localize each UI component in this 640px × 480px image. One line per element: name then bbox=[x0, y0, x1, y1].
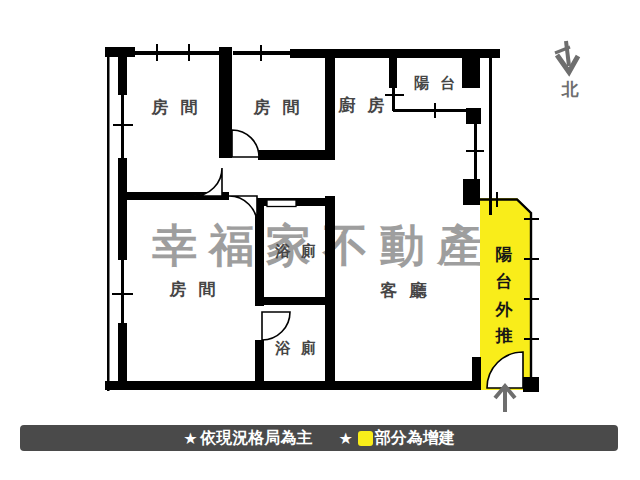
room-label-bedroom-3: 房 間 bbox=[169, 279, 219, 299]
wall-bed2-kitchen bbox=[325, 50, 335, 151]
wall-balcony-left-thick bbox=[389, 50, 397, 88]
wall-bed2-bottom bbox=[258, 150, 335, 160]
room-label-balcony: 陽 台 bbox=[414, 74, 458, 92]
wall-living-se-stub bbox=[472, 357, 481, 382]
room-label-bedroom-1: 房 間 bbox=[151, 97, 201, 117]
legend-note-addition-text: 部分為增建 bbox=[375, 428, 455, 449]
room-labels: 房 間 房 間 廚 房 陽 台 房 間 浴 廁 浴 廁 客 廳 bbox=[151, 74, 459, 357]
wall-balcony-floor-block bbox=[466, 108, 481, 124]
wall-left-outer-line bbox=[107, 49, 110, 391]
star-icon: ★ bbox=[183, 429, 197, 448]
wall-balcony-floor bbox=[393, 109, 468, 112]
north-indicator: 北 bbox=[555, 41, 580, 99]
balcony-extension-char-4: 推 bbox=[495, 325, 513, 345]
star-icon: ★ bbox=[339, 429, 353, 448]
north-arrow-icon bbox=[555, 41, 578, 72]
wall-left-inner-c bbox=[118, 323, 127, 383]
legend-yellow-square-icon bbox=[358, 431, 373, 446]
screenshot-root: { "floorplan": { "watermark": "幸福家不動產", … bbox=[0, 0, 640, 480]
wall-bottom bbox=[105, 381, 481, 390]
wall-right-line bbox=[489, 58, 492, 215]
wall-kitchen-window-block bbox=[463, 179, 480, 205]
wall-bath-mid bbox=[255, 297, 335, 305]
wall-bath-left-b bbox=[255, 340, 264, 383]
balcony-extension-char-1: 陽 bbox=[496, 244, 513, 264]
wall-left-window-b bbox=[121, 260, 124, 323]
legend-note-addition: ★ 部分為增建 bbox=[339, 428, 455, 449]
wall-top-window-bed1 bbox=[135, 51, 219, 55]
bathroom-window-rect bbox=[267, 200, 296, 207]
wall-balcony-left-window bbox=[392, 88, 395, 111]
balcony-extension-char-3: 外 bbox=[495, 299, 514, 319]
balcony-extension-area bbox=[480, 198, 531, 390]
bathroom2-door-arc bbox=[262, 312, 290, 340]
room-label-bathroom-2: 浴 廁 bbox=[275, 339, 319, 357]
wall-left-inner-a bbox=[118, 49, 127, 95]
watermark-text: 幸福家不動產 bbox=[152, 219, 494, 272]
wall-entry-corner-block bbox=[523, 377, 539, 392]
room-label-bedroom-2: 房 間 bbox=[253, 97, 303, 117]
wall-left-window-a bbox=[121, 95, 124, 158]
floorplan-image: 幸福家不動產 bbox=[0, 0, 640, 480]
balcony-extension-char-2: 台 bbox=[496, 271, 513, 291]
legend-note-current-layout: ★ 依現況格局為主 bbox=[183, 428, 312, 449]
room-label-bathroom-1: 浴 廁 bbox=[275, 242, 319, 260]
bedroom2-door-arc bbox=[232, 130, 259, 157]
wall-bed1-bed2-divider bbox=[219, 47, 232, 158]
legend-bar: ★ 依現況格局為主 ★ 部分為增建 bbox=[20, 425, 618, 451]
north-label: 北 bbox=[561, 79, 580, 99]
legend-note-current-layout-text: 依現況格局為主 bbox=[201, 428, 313, 449]
wall-bath-right bbox=[325, 196, 335, 383]
wall-balcony-shaft bbox=[462, 50, 480, 88]
wall-left-inner-b bbox=[118, 158, 127, 260]
bedroom1-door-arc bbox=[194, 168, 222, 196]
room-label-kitchen: 廚 房 bbox=[338, 95, 388, 115]
room-label-living-room: 客 廳 bbox=[380, 280, 430, 300]
